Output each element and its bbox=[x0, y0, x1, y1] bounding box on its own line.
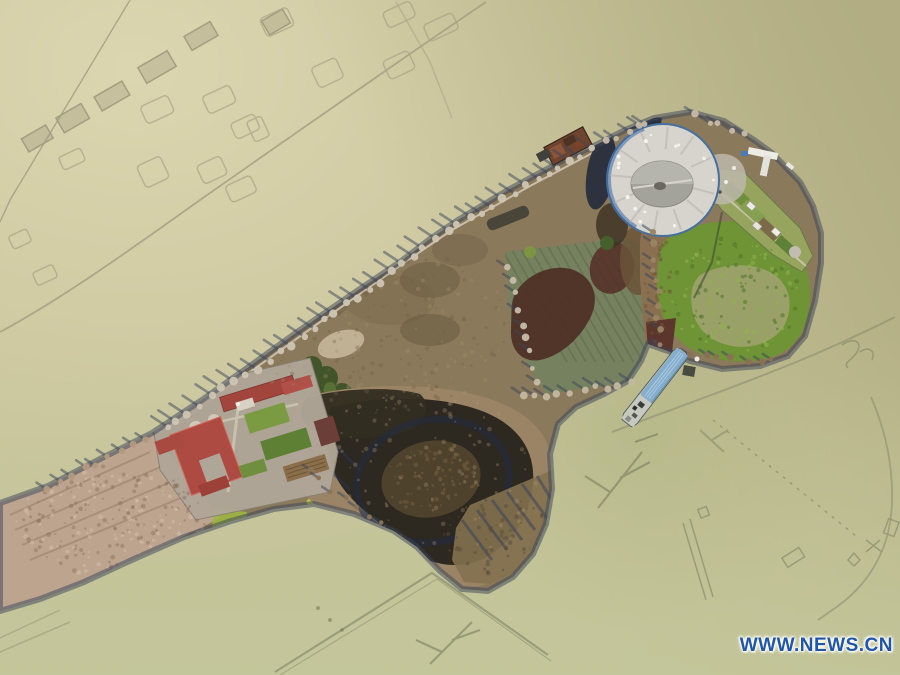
debris-pile bbox=[789, 246, 801, 258]
white-buoy bbox=[695, 357, 700, 362]
aerial-photo: WWW.NEWS.CN bbox=[0, 0, 900, 675]
news-watermark: WWW.NEWS.CN bbox=[740, 635, 893, 657]
mooring-dock bbox=[682, 365, 696, 377]
flagpole-dot bbox=[236, 402, 240, 406]
moored-boat-blue bbox=[741, 151, 748, 156]
green-dab bbox=[524, 246, 536, 258]
aerial-photo-canvas bbox=[0, 0, 900, 675]
circular-platform bbox=[607, 124, 719, 236]
dome-center bbox=[654, 182, 666, 190]
